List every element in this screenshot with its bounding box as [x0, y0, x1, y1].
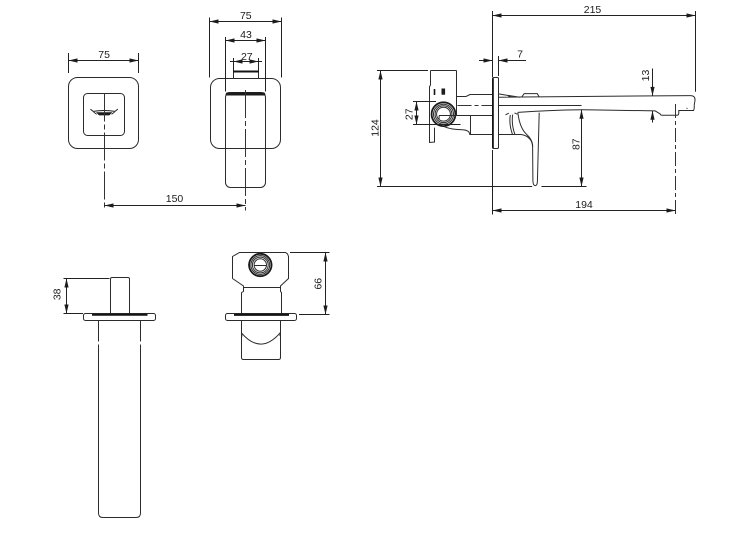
svg-text:7: 7 [517, 49, 523, 61]
svg-text:150: 150 [166, 193, 184, 205]
svg-text:27: 27 [403, 108, 415, 120]
svg-text:27: 27 [241, 51, 253, 63]
svg-text:66: 66 [312, 278, 324, 290]
svg-text:194: 194 [575, 199, 593, 211]
svg-text:75: 75 [98, 49, 110, 61]
svg-text:215: 215 [584, 4, 602, 16]
svg-text:43: 43 [240, 29, 252, 41]
svg-text:124: 124 [369, 119, 381, 137]
svg-text:38: 38 [51, 288, 63, 300]
svg-text:87: 87 [570, 138, 582, 150]
svg-text:13: 13 [640, 70, 652, 82]
svg-text:75: 75 [240, 10, 252, 22]
